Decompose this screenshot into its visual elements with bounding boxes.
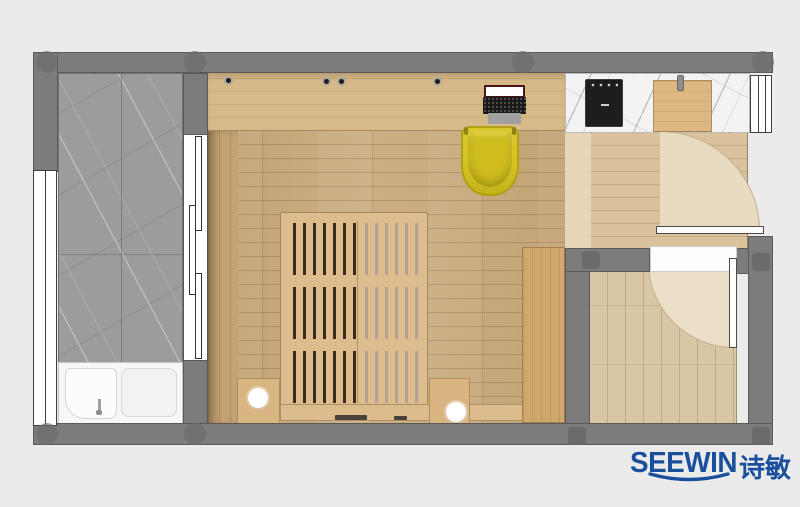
cutting-board-handle <box>677 75 684 91</box>
lamp-left <box>248 388 268 408</box>
wall-pillar <box>184 51 206 73</box>
wall-pillar <box>568 427 586 445</box>
logo-swoosh-icon <box>646 472 732 484</box>
brand-logo: SEEWIN 诗敏 <box>630 445 796 485</box>
desk-grommet <box>435 79 440 84</box>
desk-grommet <box>324 79 329 84</box>
bathtub-basin-left <box>65 368 117 419</box>
bed-hardware-mark <box>335 415 367 420</box>
chair-seat <box>468 131 512 187</box>
logo-text-cjk: 诗敏 <box>739 448 791 485</box>
wall-bottom <box>33 423 773 445</box>
back-room-door-leaf <box>729 258 737 348</box>
hallway-door-leaf <box>656 226 764 234</box>
window-frame-line <box>765 76 766 132</box>
tile-seam <box>59 254 184 255</box>
wall-partition-upper <box>183 73 208 135</box>
back-room-door-opening <box>650 246 737 272</box>
chair-hook <box>512 127 516 135</box>
window-frame-line <box>45 171 46 425</box>
laptop-keyboard <box>483 97 526 114</box>
floorplan-canvas: SEEWIN 诗敏 <box>0 0 800 507</box>
bed-slats-left <box>286 221 356 403</box>
wall-partition-lower <box>183 360 208 425</box>
wall-pillar <box>752 253 770 271</box>
tub-chair <box>461 126 519 196</box>
sliding-door-panel <box>195 273 202 359</box>
bathroom-floor <box>58 73 183 365</box>
cooktop-knobs <box>590 83 618 87</box>
window-right <box>750 75 772 133</box>
bathtub-basin-right <box>121 368 177 417</box>
desk-grommet <box>226 78 231 83</box>
wall-pillar <box>752 51 774 73</box>
wall-pillar <box>582 251 600 269</box>
window-frame-line <box>758 76 759 132</box>
wall-pillar <box>36 423 58 445</box>
bathtub <box>58 362 183 424</box>
chair-hook <box>464 127 468 135</box>
wardrobe-strip <box>208 131 238 424</box>
wall-back-room-top <box>565 248 650 272</box>
storage-bench <box>522 247 565 423</box>
bed-hardware-mark <box>394 416 407 420</box>
wall-back-room-left <box>565 248 590 424</box>
hallway-threshold-strip <box>565 133 591 249</box>
wall-pillar <box>36 51 58 73</box>
cooktop-display <box>601 104 609 106</box>
sliding-door-panel <box>195 136 202 231</box>
tile-seam <box>121 74 122 366</box>
slatted-platform-bed <box>280 212 428 408</box>
wall-pillar <box>184 423 206 445</box>
window-left <box>33 170 57 426</box>
lamp-right <box>446 402 466 422</box>
desk-grommet <box>339 79 344 84</box>
bed-slats-right <box>357 221 424 403</box>
wall-top <box>33 52 773 73</box>
cooktop <box>585 79 623 127</box>
wall-pillar <box>752 427 770 445</box>
bathtub-faucet-head <box>96 410 102 415</box>
wall-pillar <box>512 51 534 73</box>
laptop-trackpad <box>488 113 521 124</box>
sliding-glass-door <box>183 133 208 362</box>
wall-back-room-stub <box>735 248 749 274</box>
